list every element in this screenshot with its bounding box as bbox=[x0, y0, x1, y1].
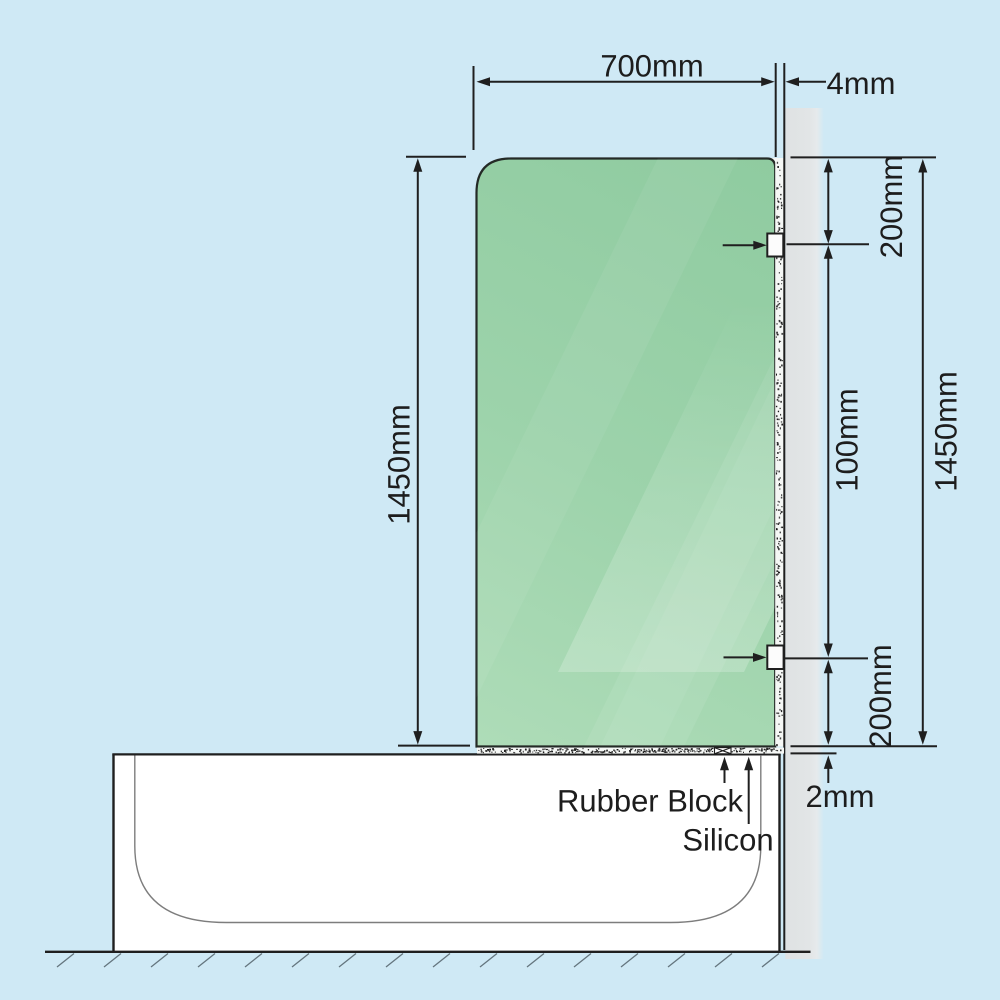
svg-text:1450mm: 1450mm bbox=[929, 371, 964, 492]
svg-text:200mm: 200mm bbox=[863, 644, 898, 747]
svg-text:2mm: 2mm bbox=[806, 779, 875, 814]
svg-text:1450mm: 1450mm bbox=[382, 404, 417, 525]
svg-text:700mm: 700mm bbox=[600, 49, 703, 84]
svg-text:Silicon: Silicon bbox=[682, 823, 773, 858]
svg-text:Rubber Block: Rubber Block bbox=[557, 784, 744, 819]
svg-text:200mm: 200mm bbox=[874, 155, 909, 258]
svg-text:100mm: 100mm bbox=[830, 388, 865, 491]
svg-text:4mm: 4mm bbox=[827, 66, 896, 101]
